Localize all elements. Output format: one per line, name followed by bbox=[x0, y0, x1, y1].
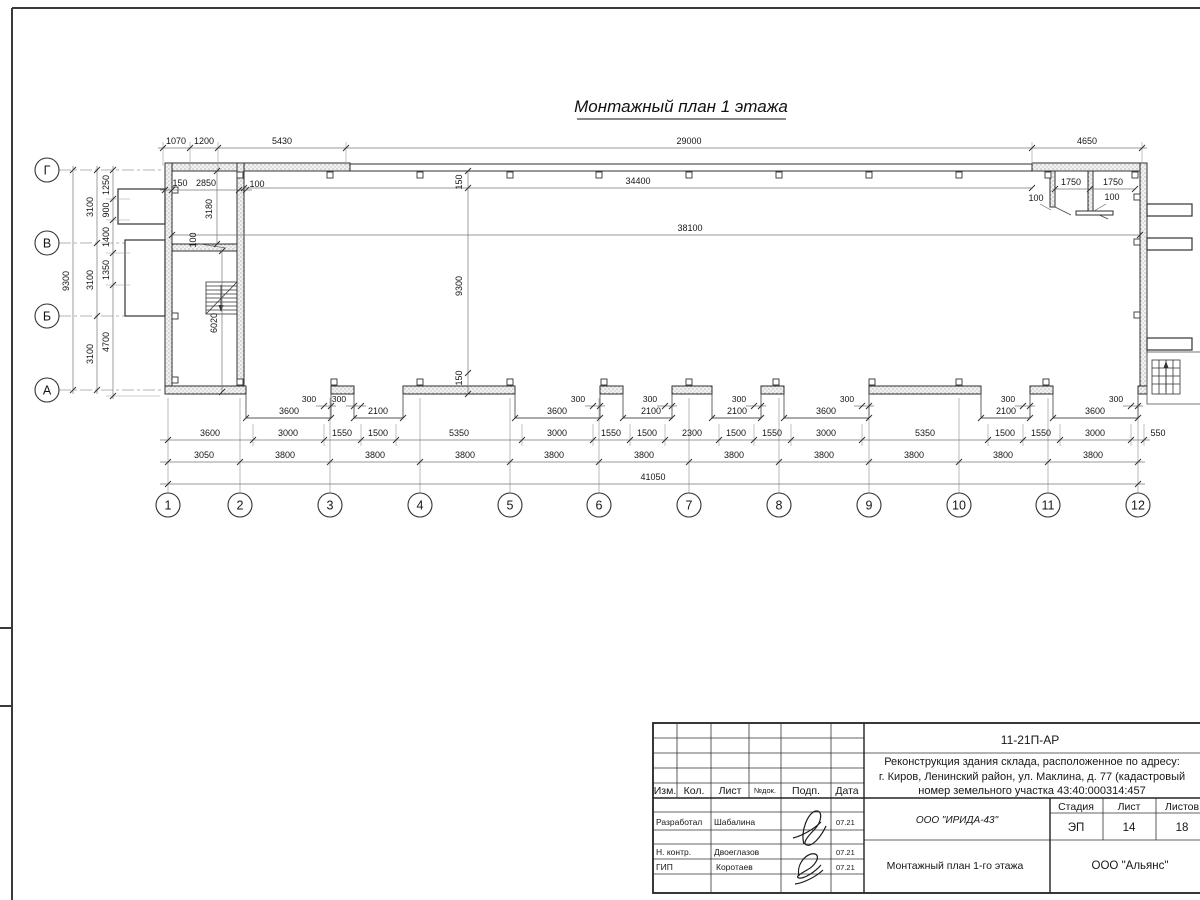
axis-label: А bbox=[43, 384, 52, 398]
dim: 9300 bbox=[454, 276, 464, 296]
drawing-sheet: Монтажный план 1 этажа bbox=[0, 0, 1200, 900]
dim: 300 bbox=[1001, 394, 1015, 404]
role-label: Н. контр. bbox=[656, 847, 691, 857]
project-line: г. Киров, Ленинский район, ул. Маклина, … bbox=[879, 771, 1185, 783]
axis-bubbles-left bbox=[35, 158, 59, 402]
right-canopy-2 bbox=[1147, 238, 1192, 250]
dim: 3600 bbox=[200, 428, 220, 438]
role-label: Разработал bbox=[656, 817, 702, 827]
dim: 1500 bbox=[368, 428, 388, 438]
role-name: Шабалина bbox=[714, 817, 755, 827]
dim: 3600 bbox=[547, 406, 567, 416]
dim: 3600 bbox=[1085, 406, 1105, 416]
sheets-value: 18 bbox=[1176, 822, 1189, 834]
dim: 3050 bbox=[194, 450, 214, 460]
dim: 3800 bbox=[275, 450, 295, 460]
door-leaf bbox=[1076, 211, 1113, 215]
dim: 2100 bbox=[368, 406, 388, 416]
dim: 6020 bbox=[209, 313, 219, 333]
dim: 150 bbox=[454, 370, 464, 385]
dim: 300 bbox=[332, 394, 346, 404]
dim: 1500 bbox=[637, 428, 657, 438]
dim: 1500 bbox=[726, 428, 746, 438]
dim: 1400 bbox=[101, 227, 111, 247]
sheet-value: 14 bbox=[1123, 822, 1136, 834]
org-name: ООО "ИРИДА-43" bbox=[916, 815, 999, 826]
title-block: Изм. Кол. Лист №док. Подп. Дата 11-21П-А… bbox=[653, 723, 1200, 893]
axis-label: 12 bbox=[1131, 499, 1145, 513]
dim: 3100 bbox=[85, 270, 95, 290]
dim: 1500 bbox=[995, 428, 1015, 438]
dim: 2100 bbox=[996, 406, 1016, 416]
dim: 300 bbox=[643, 394, 657, 404]
dim: 3800 bbox=[1083, 450, 1103, 460]
left-ramp-bottom bbox=[125, 240, 165, 316]
dim: 1350 bbox=[101, 260, 111, 280]
dim: 100 bbox=[1104, 192, 1119, 202]
role-name: Коротаев bbox=[716, 862, 753, 872]
dim: 3100 bbox=[85, 197, 95, 217]
dim: 1550 bbox=[762, 428, 782, 438]
dim: 34400 bbox=[625, 176, 650, 186]
dim: 5350 bbox=[915, 428, 935, 438]
dim: 1070 bbox=[166, 136, 186, 146]
stage-header: Стадия bbox=[1058, 801, 1094, 813]
col-header: Изм. bbox=[654, 785, 677, 797]
dim: 4650 bbox=[1077, 136, 1097, 146]
stairs-right bbox=[1147, 352, 1200, 404]
dim: 5430 bbox=[272, 136, 292, 146]
dim: 300 bbox=[840, 394, 854, 404]
col-header: Кол. bbox=[684, 785, 705, 797]
dim: 4700 bbox=[101, 332, 111, 352]
dim: 29000 bbox=[676, 136, 701, 146]
col-header: №док. bbox=[754, 786, 776, 795]
walls bbox=[165, 163, 1147, 394]
axis-label: 2 bbox=[237, 499, 244, 513]
axis-label: 5 bbox=[507, 499, 514, 513]
project-line: Реконструкция здания склада, расположенн… bbox=[884, 756, 1180, 768]
axis-label: 3 bbox=[327, 499, 334, 513]
dim: 3600 bbox=[816, 406, 836, 416]
dim: 3800 bbox=[724, 450, 744, 460]
dim: 2100 bbox=[727, 406, 747, 416]
dim: 1200 bbox=[194, 136, 214, 146]
dim: 150 bbox=[454, 174, 464, 189]
dim: 900 bbox=[101, 202, 111, 217]
dim: 2300 bbox=[682, 428, 702, 438]
axis-label: 10 bbox=[952, 499, 966, 513]
stairs-arrow-icon bbox=[219, 305, 224, 312]
project-line: номер земельного участка 43:40:000314:45… bbox=[918, 785, 1146, 797]
dim: 3800 bbox=[993, 450, 1013, 460]
stairs-left bbox=[206, 282, 237, 314]
dim: 1750 bbox=[1103, 177, 1123, 187]
dim: 300 bbox=[732, 394, 746, 404]
column-markers bbox=[172, 172, 1140, 385]
axis-label: В bbox=[43, 237, 51, 251]
col-header: Подп. bbox=[792, 785, 820, 797]
contractor-name: ООО "Альянс" bbox=[1092, 860, 1169, 872]
dim: 1550 bbox=[1031, 428, 1051, 438]
dim: 3000 bbox=[816, 428, 836, 438]
dim: 3800 bbox=[814, 450, 834, 460]
dim: 100 bbox=[188, 232, 198, 247]
role-date: 07.21 bbox=[836, 818, 855, 827]
axis-label: 4 bbox=[417, 499, 424, 513]
plan-title: Монтажный план 1 этажа bbox=[574, 97, 788, 116]
col-header: Лист bbox=[719, 785, 742, 797]
axis-label: 11 bbox=[1042, 499, 1055, 513]
doc-number: 11-21П-АР bbox=[1001, 733, 1059, 747]
dim: 2100 bbox=[641, 406, 661, 416]
dim: 38100 bbox=[677, 223, 702, 233]
dim: 1550 bbox=[601, 428, 621, 438]
dim: 9300 bbox=[61, 271, 71, 291]
dim: 300 bbox=[1109, 394, 1123, 404]
col-header: Дата bbox=[835, 785, 858, 797]
left-ramp-top bbox=[118, 189, 165, 224]
axis-labels-left: Г В Б А bbox=[43, 164, 52, 398]
axis-label: Г bbox=[44, 164, 51, 178]
dim: 3800 bbox=[455, 450, 475, 460]
axis-label: 9 bbox=[866, 499, 873, 513]
dim: 2850 bbox=[196, 178, 216, 188]
dim: 3000 bbox=[1085, 428, 1105, 438]
stage-value: ЭП bbox=[1068, 822, 1085, 834]
signature-icon bbox=[793, 811, 826, 884]
dim: 3800 bbox=[365, 450, 385, 460]
exterior-platforms bbox=[118, 189, 1192, 350]
axis-bubbles-bottom bbox=[156, 493, 1150, 517]
dim: 300 bbox=[571, 394, 585, 404]
dim: 5350 bbox=[449, 428, 469, 438]
dim: 3600 bbox=[279, 406, 299, 416]
role-date: 07.21 bbox=[836, 848, 855, 857]
dim: 1750 bbox=[1061, 177, 1081, 187]
page-title: Монтажный план 1 этажа bbox=[574, 97, 788, 119]
axis-lines bbox=[59, 170, 1138, 493]
dim: 100 bbox=[249, 179, 264, 189]
dim: 3800 bbox=[904, 450, 924, 460]
role-name: Двоеглазов bbox=[714, 847, 760, 857]
dim: 3100 bbox=[85, 344, 95, 364]
axis-label: Б bbox=[43, 310, 51, 324]
stairs-arrow-icon bbox=[1164, 361, 1169, 368]
dim: 3180 bbox=[204, 199, 214, 219]
sheet-header: Лист bbox=[1118, 801, 1141, 813]
dim: 3800 bbox=[544, 450, 564, 460]
axis-labels-bottom: 1 2 3 4 5 6 7 8 9 10 11 12 bbox=[165, 499, 1145, 513]
doors-top-right bbox=[1055, 207, 1113, 219]
dim: 3000 bbox=[547, 428, 567, 438]
axis-label: 7 bbox=[686, 499, 693, 513]
axis-label: 8 bbox=[776, 499, 783, 513]
dim: 100 bbox=[1028, 193, 1043, 203]
dim: 1250 bbox=[101, 175, 111, 195]
dim: 3800 bbox=[634, 450, 654, 460]
right-canopy-1 bbox=[1147, 204, 1192, 216]
axis-label: 6 bbox=[596, 499, 603, 513]
drawing-title: Монтажный план 1-го этажа bbox=[887, 860, 1024, 872]
axis-label: 1 bbox=[165, 499, 172, 513]
dim: 41050 bbox=[640, 472, 665, 482]
dim: 300 bbox=[302, 394, 316, 404]
dim: 550 bbox=[1150, 428, 1165, 438]
sheets-header: Листов bbox=[1165, 801, 1200, 813]
dim: 150 bbox=[172, 178, 187, 188]
right-canopy-3 bbox=[1147, 338, 1192, 350]
role-date: 07.21 bbox=[836, 863, 855, 872]
role-label: ГИП bbox=[656, 862, 673, 872]
dim: 3000 bbox=[278, 428, 298, 438]
dim: 1550 bbox=[332, 428, 352, 438]
